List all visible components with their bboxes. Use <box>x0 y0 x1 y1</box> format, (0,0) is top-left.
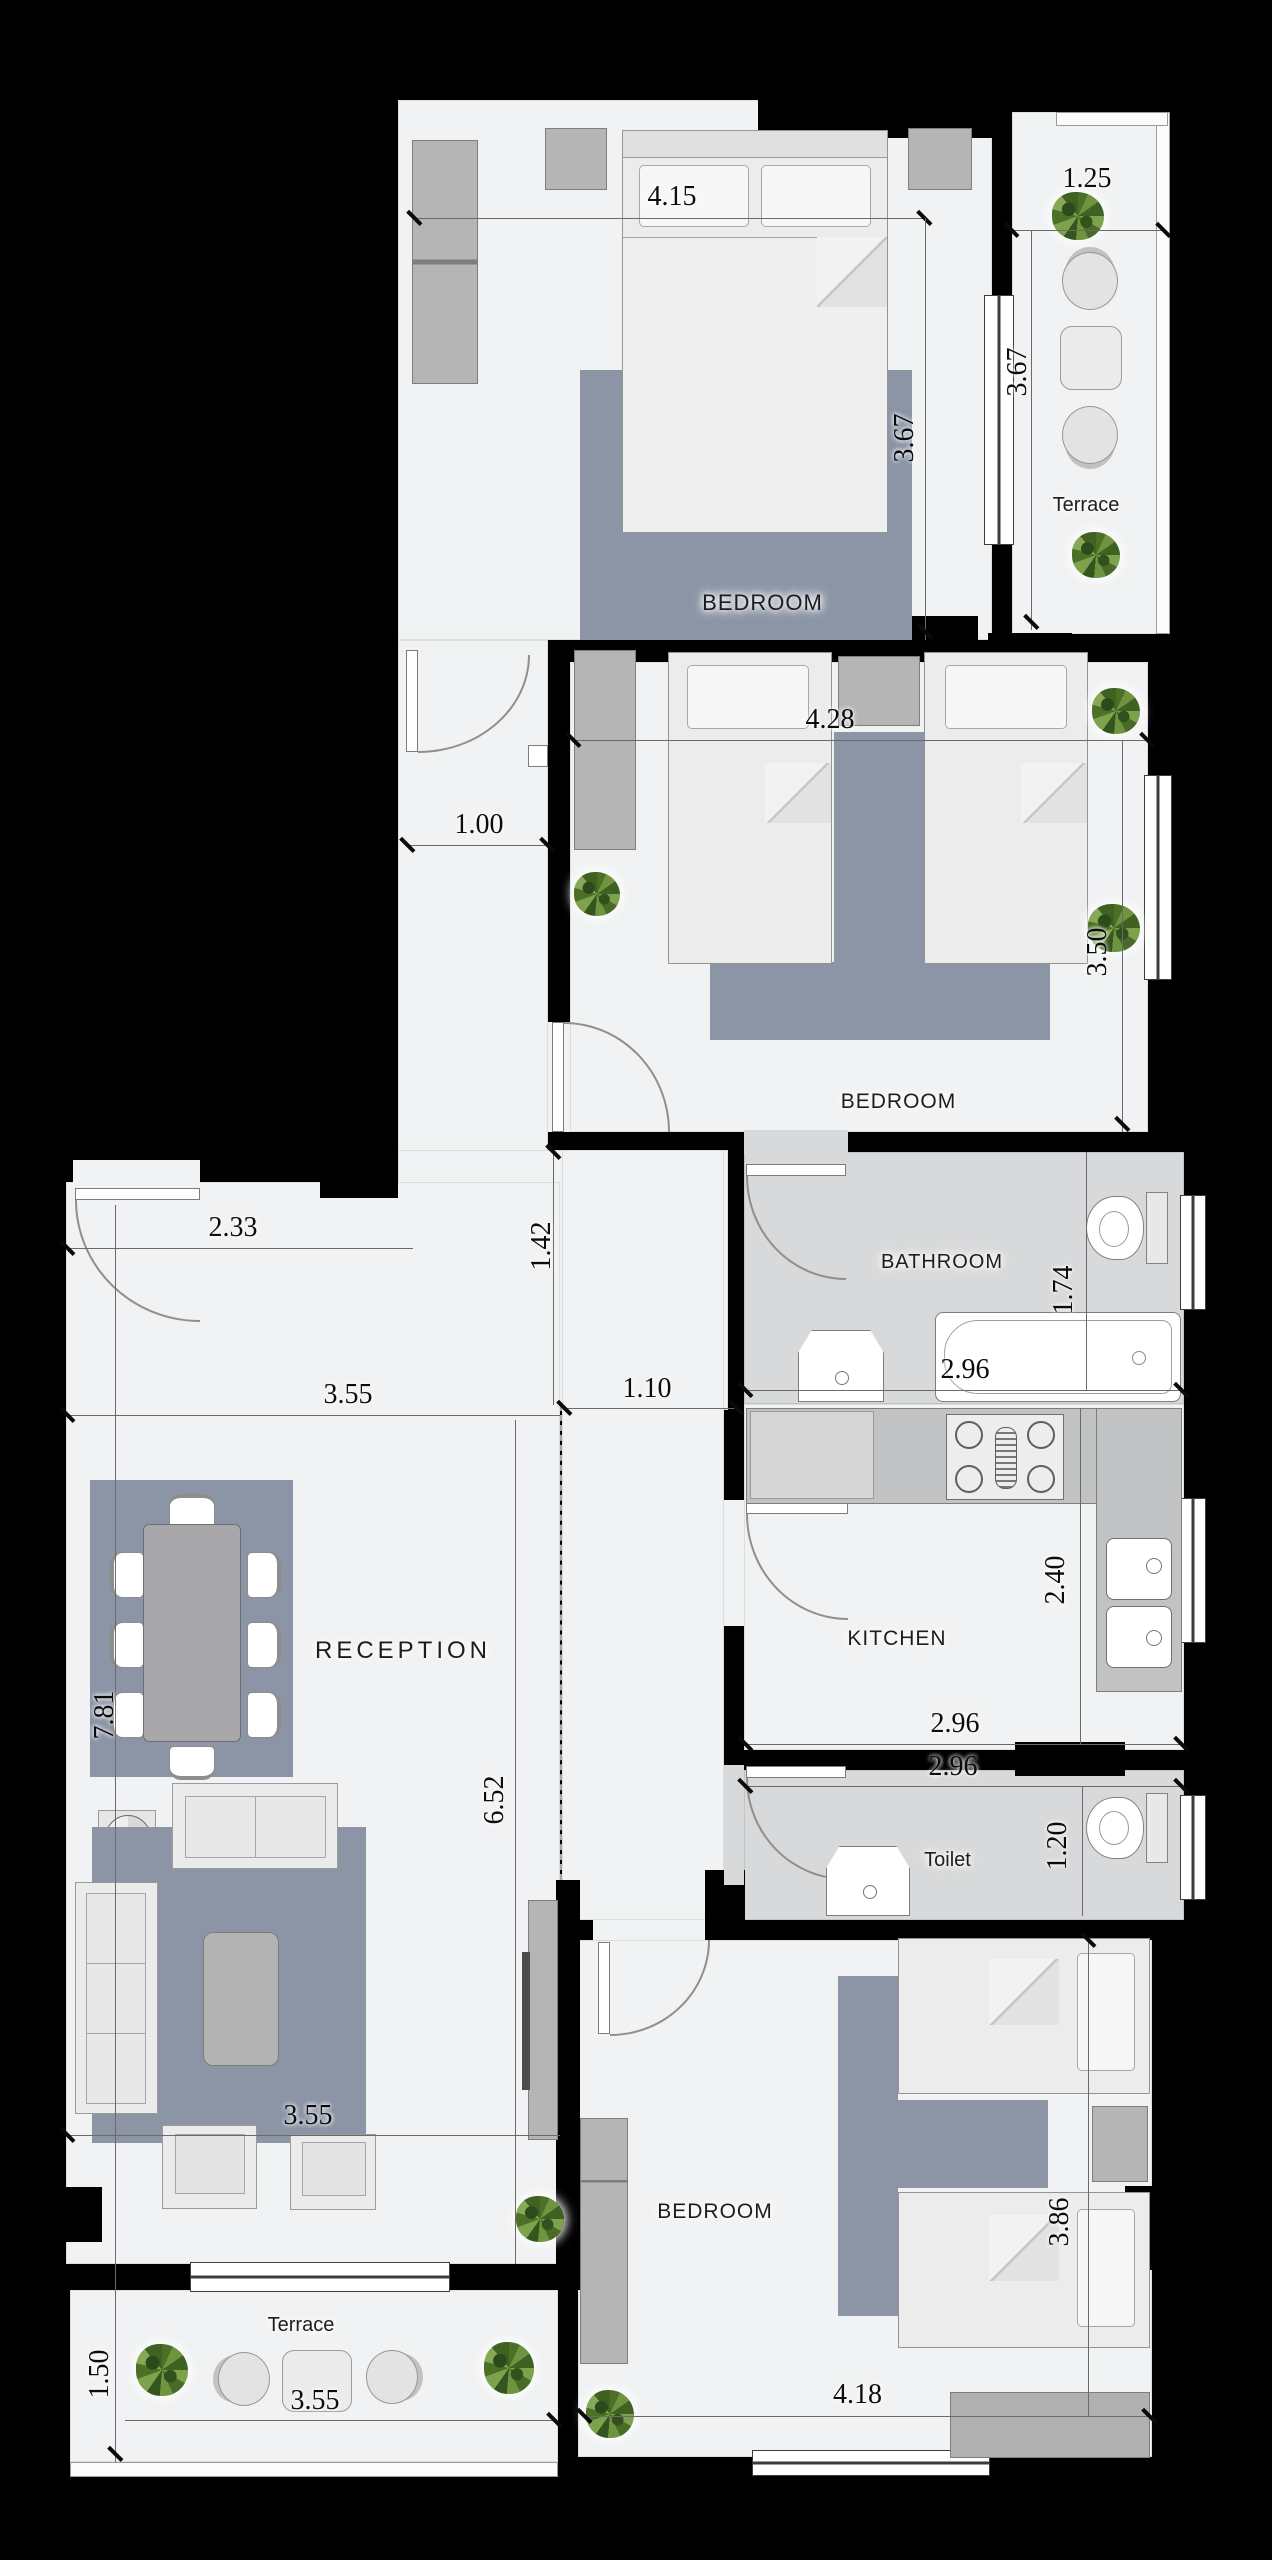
dim-line <box>1122 740 1123 1132</box>
room-label-reception: RECEPTION <box>298 1636 508 1666</box>
dim-line <box>746 1786 1182 1787</box>
room-label-terrace-bottom: Terrace <box>252 2312 350 2338</box>
dim-bedroom-bottom-width: 4.18 <box>795 2380 920 2410</box>
dim-kitchen-height: 2.40 <box>1042 1552 1070 1608</box>
dim-reception-inner-height: 6.52 <box>481 1772 509 1828</box>
bed-fold <box>765 763 831 823</box>
bed-pillow <box>1077 2209 1135 2327</box>
dim-bedroom-bottom-height: 3.86 <box>1046 2194 1074 2250</box>
corridor-floor <box>562 1150 724 1920</box>
armchair <box>162 2125 257 2209</box>
bedroom-middle-bed-right <box>924 652 1088 964</box>
plant <box>484 2342 534 2394</box>
bedroom-bottom-door-leaf <box>598 1942 610 2034</box>
dim-line <box>565 1408 737 1409</box>
plant <box>1052 192 1104 240</box>
sofa-long <box>75 1882 158 2114</box>
dim-terrace-bottom-width: 3.55 <box>268 2386 362 2416</box>
dim-bathroom-width: 2.96 <box>905 1354 1025 1386</box>
toilet-room-sink <box>826 1846 910 1916</box>
dim-reception-width: 3.55 <box>300 1380 396 1410</box>
dim-terrace-top-height: 3.67 <box>1004 344 1032 400</box>
plant <box>136 2344 188 2396</box>
bedroom-bottom-bench <box>950 2392 1150 2458</box>
terrace-top-chair <box>1062 252 1118 310</box>
wall-kitchen-toilet-block <box>1015 1742 1125 1776</box>
bedroom-bottom-bed-top <box>898 1938 1150 2094</box>
sink-drain <box>1146 1630 1162 1646</box>
room-label-toilet: Toilet <box>900 1846 995 1874</box>
bed-pillow <box>1077 1953 1135 2071</box>
wall-entry-step <box>320 1182 398 1198</box>
dining-chair <box>247 1552 281 1598</box>
dim-reception-bottom-width: 3.55 <box>262 2100 354 2132</box>
doorway-entrance <box>73 1160 200 1184</box>
bed-fold <box>1021 763 1087 823</box>
dining-chair <box>169 1494 215 1528</box>
window-reception-terrace <box>190 2262 450 2292</box>
dim-line <box>746 1390 1182 1391</box>
stove-grill <box>995 1427 1017 1489</box>
terrace-bottom-chair <box>366 2350 418 2404</box>
bed-fold <box>817 237 887 307</box>
dim-corridor-width: 1.10 <box>602 1374 692 1404</box>
dim-line <box>746 1744 1182 1745</box>
entrance-door-leaf <box>75 1188 200 1200</box>
plant <box>516 2196 564 2242</box>
terrace-bottom-rail <box>70 2462 558 2477</box>
dim-entry-width: 2.33 <box>185 1212 281 1244</box>
terrace-top-chair <box>1062 406 1118 464</box>
armchair <box>290 2134 376 2210</box>
bedroom-bottom-wardrobe <box>580 2118 628 2364</box>
dim-passage: 1.42 <box>528 1218 556 1274</box>
toilet-bowl <box>1086 1797 1144 1859</box>
stove-burner <box>955 1465 983 1493</box>
terrace-bottom-chair <box>218 2352 270 2406</box>
dim-bedroom-top-width: 4.15 <box>612 182 732 212</box>
room-label-bedroom-top: BEDROOM <box>660 588 865 618</box>
bathroom-sink <box>798 1330 884 1402</box>
dim-terrace-bottom-height: 1.50 <box>86 2346 114 2402</box>
wall-reception-bottom-left-step <box>60 2187 102 2242</box>
sink-basin <box>1106 1606 1172 1668</box>
toilet-bowl-inner <box>1099 1811 1129 1845</box>
sofa-cushion <box>255 1796 326 1858</box>
kitchen-stove <box>946 1414 1064 1500</box>
sink-basin <box>1106 1538 1172 1600</box>
doorway-kitchen <box>724 1500 744 1626</box>
toilet-tank <box>1146 1192 1168 1264</box>
open-boundary-dashed <box>560 1405 562 1880</box>
room-label-bedroom-bottom: BEDROOM <box>640 2198 790 2226</box>
kitchen-fridge-counter <box>750 1411 874 1499</box>
toilet-room-toilet <box>1086 1790 1168 1866</box>
window-bedroom-top <box>984 295 1014 545</box>
dim-line <box>125 2420 555 2421</box>
plant <box>574 872 620 916</box>
plant <box>1072 532 1120 578</box>
room-label-bedroom-middle: BEDROOM <box>826 1088 971 1116</box>
floor-plan: BEDROOM Terrace BEDROOM BATHROOM KITCHEN… <box>0 0 1272 2560</box>
sink-drain <box>835 1371 849 1385</box>
plant <box>586 2390 634 2438</box>
dim-line <box>68 1415 560 1416</box>
sink-drain <box>1146 1558 1162 1574</box>
dining-chair <box>247 1692 281 1738</box>
dim-line <box>68 2135 560 2136</box>
bathroom-door-leaf <box>746 1164 846 1176</box>
bedroom-top-cabinet-right <box>908 128 972 190</box>
bed-headboard <box>623 131 887 158</box>
dim-line <box>1088 1940 1089 2416</box>
bedroom-middle-wardrobe <box>574 650 636 850</box>
sofa-cushion <box>86 1963 146 2034</box>
hallway-door-leaf <box>406 650 418 752</box>
tub-drain <box>1132 1351 1146 1365</box>
sofa-cushion <box>86 2033 146 2104</box>
dim-toilet-width: 2.96 <box>895 1752 1011 1782</box>
window-bedroom-middle <box>1144 775 1172 980</box>
dining-chair <box>169 1746 215 1780</box>
bedroom-bottom-nightstand <box>1092 2106 1148 2182</box>
coffee-table <box>203 1932 279 2066</box>
dim-hallway-width: 1.00 <box>424 810 534 840</box>
bedroom-top-wardrobe <box>412 140 478 384</box>
bedroom-middle-bed-left <box>668 652 832 964</box>
dim-line <box>515 1420 516 2264</box>
bed-pillow <box>945 665 1067 729</box>
dim-reception-height: 7.81 <box>91 1687 119 1743</box>
stove-burner <box>1027 1465 1055 1493</box>
plant <box>1092 688 1140 734</box>
sofa-cushion <box>185 1796 256 1858</box>
dim-line <box>115 1205 116 2290</box>
dim-line <box>1031 230 1032 630</box>
hallway-door-stub <box>528 745 548 767</box>
window-bathroom <box>1180 1195 1206 1310</box>
room-label-terrace-top: Terrace <box>1036 492 1136 518</box>
dining-chair <box>247 1622 281 1668</box>
doorway-bathroom <box>744 1130 848 1154</box>
dim-line <box>68 1248 413 1249</box>
doorway-bedroom-bottom <box>593 1920 705 1940</box>
dining-table <box>143 1524 241 1742</box>
bedroom-middle-door-leaf <box>552 1022 564 1132</box>
dim-bedroom-top-height: 3.67 <box>891 410 919 466</box>
terrace-top-table <box>1060 326 1122 390</box>
dim-line <box>415 218 925 219</box>
dim-line <box>408 845 548 846</box>
dim-line <box>1080 1408 1081 1744</box>
dim-line <box>574 740 1148 741</box>
bedroom-middle-rug-arm <box>710 962 1050 1040</box>
bedroom-bottom-bed-bottom <box>898 2192 1150 2348</box>
room-label-kitchen: KITCHEN <box>824 1624 970 1654</box>
toilet-tank <box>1146 1793 1168 1863</box>
bed-fold <box>989 1959 1059 2025</box>
toilet-door-leaf <box>746 1766 846 1778</box>
bedroom-top-cabinet-left <box>545 128 607 190</box>
dim-line <box>925 218 926 640</box>
terrace-top-rail-right <box>1156 112 1170 634</box>
dim-terrace-top-width: 1.25 <box>1032 164 1142 194</box>
toilet-bowl <box>1086 1196 1144 1260</box>
tv-console <box>528 1900 558 2140</box>
dim-line <box>585 2416 1150 2417</box>
bathroom-toilet <box>1086 1188 1168 1266</box>
dim-toilet-height: 1.20 <box>1044 1818 1072 1874</box>
sink-drain <box>863 1885 877 1899</box>
dim-line <box>1012 230 1164 231</box>
dim-line <box>553 1152 554 1405</box>
tv <box>522 1952 530 2090</box>
sofa-cushion <box>86 1893 146 1964</box>
bedroom-bottom-rug-arm <box>898 2100 1048 2188</box>
window-toilet <box>1180 1795 1206 1900</box>
dim-line <box>1086 1152 1087 1390</box>
stove-burner <box>955 1421 983 1449</box>
kitchen-sink <box>1106 1538 1172 1670</box>
armchair-cushion <box>302 2142 366 2196</box>
toilet-bowl-inner <box>1099 1211 1129 1247</box>
bedroom-bottom-rug-stem <box>838 1976 898 2316</box>
armchair-cushion <box>175 2134 245 2194</box>
room-label-bathroom: BATHROOM <box>872 1248 1012 1276</box>
dim-bedroom-middle-height: 3.50 <box>1084 924 1112 980</box>
dim-bathroom-height: 1.74 <box>1050 1262 1078 1318</box>
dim-kitchen-width: 2.96 <box>895 1708 1015 1740</box>
dim-line <box>1082 1786 1083 1916</box>
stove-burner <box>1027 1421 1055 1449</box>
dim-bedroom-middle-width: 4.28 <box>770 704 890 736</box>
window-kitchen <box>1180 1498 1206 1643</box>
terrace-top-rail-top <box>1056 112 1168 126</box>
sofa-loveseat <box>172 1783 338 1869</box>
